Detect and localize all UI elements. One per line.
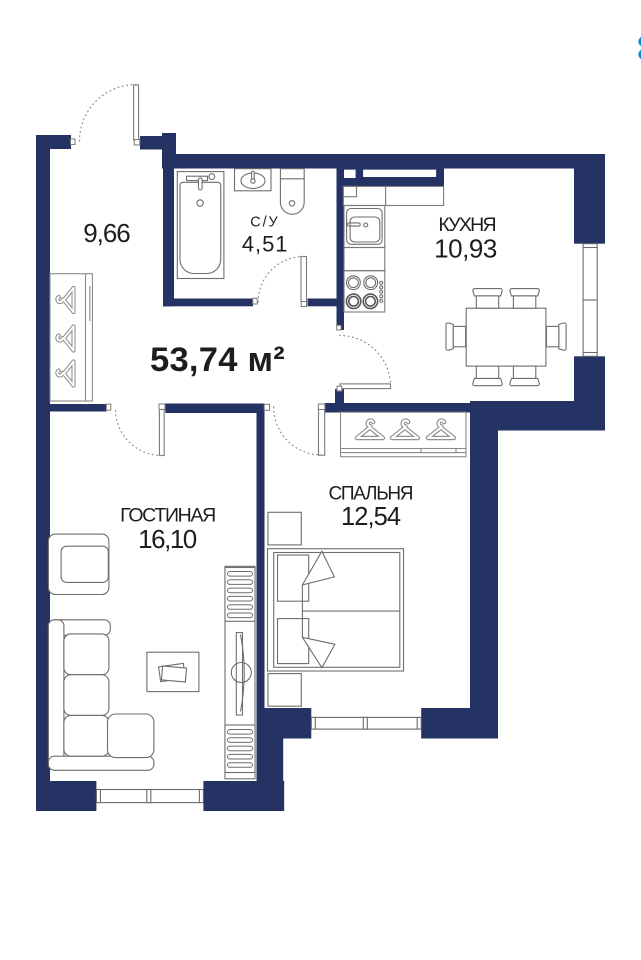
svg-text:СПАЛЬНЯ: СПАЛЬНЯ xyxy=(329,484,414,505)
svg-text:53,74 м²: 53,74 м² xyxy=(150,341,285,379)
svg-text:16,10: 16,10 xyxy=(138,524,197,554)
svg-text:4,51: 4,51 xyxy=(242,231,288,256)
svg-text:С/У: С/У xyxy=(250,214,278,230)
svg-text:КУХНЯ: КУХНЯ xyxy=(438,214,496,236)
svg-text:10,93: 10,93 xyxy=(434,234,497,264)
svg-text:9,66: 9,66 xyxy=(83,218,131,248)
svg-text:12,54: 12,54 xyxy=(341,503,401,531)
